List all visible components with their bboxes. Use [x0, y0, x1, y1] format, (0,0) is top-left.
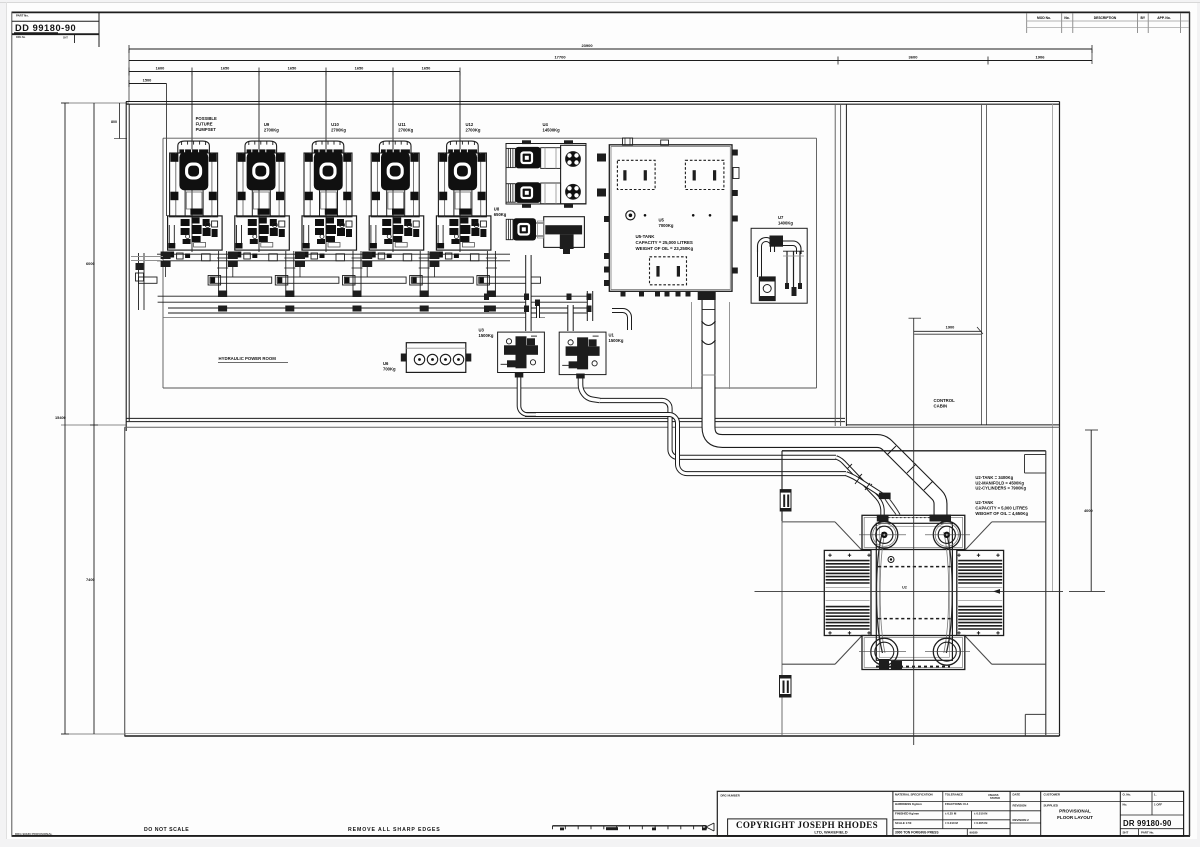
svg-text:LTD, WAKEFIELD: LTD, WAKEFIELD — [814, 830, 847, 835]
svg-text:6000: 6000 — [86, 261, 95, 266]
svg-text:MOD No.: MOD No. — [1037, 16, 1051, 20]
svg-text:U10: U10 — [331, 122, 339, 127]
svg-text:FRACTIONS ±0.4: FRACTIONS ±0.4 — [945, 802, 969, 806]
svg-text:U12: U12 — [466, 122, 474, 127]
svg-text:CUSTOMER: CUSTOMER — [1044, 793, 1061, 797]
svg-text:SUPPLIED: SUPPLIED — [1044, 804, 1058, 808]
svg-text:DD 99180-90: DD 99180-90 — [15, 23, 76, 33]
svg-text:DO NOT SCALE: DO NOT SCALE — [144, 827, 189, 833]
svg-text:O. No.: O. No. — [1123, 793, 1132, 797]
svg-text:650Kg: 650Kg — [494, 212, 507, 217]
svg-text:DATE: DATE — [1013, 793, 1021, 797]
svg-text:± 0.010 IN: ± 0.010 IN — [974, 812, 987, 816]
svg-text:PART No.: PART No. — [16, 14, 29, 18]
svg-text:3600: 3600 — [909, 55, 919, 60]
svg-text:U4: U4 — [543, 122, 549, 127]
svg-text:U11: U11 — [398, 122, 406, 127]
svg-text:± 0.25 M: ± 0.25 M — [945, 812, 957, 816]
svg-text:REMOVE ALL SHARP EDGES: REMOVE ALL SHARP EDGES — [348, 827, 441, 833]
svg-text:SHT: SHT — [63, 37, 68, 40]
svg-text:HARDNESS Kg/mm: HARDNESS Kg/mm — [895, 802, 922, 806]
svg-text:1 OFF: 1 OFF — [1154, 803, 1162, 807]
svg-text:1650: 1650 — [221, 66, 230, 71]
svg-text:14500Kg: 14500Kg — [543, 127, 561, 132]
svg-text:1650: 1650 — [422, 66, 431, 71]
svg-text:3000 TON FORGING PRESS: 3000 TON FORGING PRESS — [895, 831, 939, 835]
svg-text:CAPACITY = 25,000 LITRES: CAPACITY = 25,000 LITRES — [636, 240, 693, 245]
svg-text:± 0.005 IN: ± 0.005 IN — [974, 821, 987, 825]
svg-text:4000: 4000 — [1084, 508, 1093, 513]
svg-text:2700Kg: 2700Kg — [331, 127, 346, 132]
svg-text:PROVISIONAL: PROVISIONAL — [1059, 809, 1091, 814]
svg-text:WEIGHT OF OIL = 23,250Kg: WEIGHT OF OIL = 23,250Kg — [636, 246, 694, 251]
svg-text:1500Kg: 1500Kg — [609, 338, 624, 343]
svg-text:U6: U6 — [383, 361, 389, 366]
svg-text:U2-TANK: U2-TANK — [975, 500, 993, 505]
svg-text:1500: 1500 — [143, 78, 152, 83]
svg-text:7400: 7400 — [86, 577, 95, 582]
svg-text:1500Kg: 1500Kg — [479, 333, 494, 338]
svg-text:700Kg: 700Kg — [383, 366, 396, 371]
svg-text:No.: No. — [1064, 16, 1069, 20]
svg-text:HYDRAULIC POWER ROOM: HYDRAULIC POWER ROOM — [219, 356, 277, 361]
svg-text:1650: 1650 — [355, 66, 364, 71]
svg-text:DRG No: DRG No — [16, 36, 26, 39]
svg-text:± 0.010 M: ± 0.010 M — [945, 821, 958, 825]
svg-text:U7: U7 — [778, 215, 784, 220]
svg-text:U2-TANK = 3400Kg: U2-TANK = 3400Kg — [975, 475, 1013, 480]
svg-text:U5: U5 — [659, 218, 665, 223]
svg-text:2700Kg: 2700Kg — [466, 127, 481, 132]
svg-text:DR 99180-90: DR 99180-90 — [1123, 819, 1172, 828]
svg-text:U5-TANK: U5-TANK — [636, 234, 656, 239]
svg-text:DESCRIPTION: DESCRIPTION — [1094, 16, 1117, 20]
svg-text:99180: 99180 — [970, 831, 978, 835]
svg-text:STATED: STATED — [990, 796, 1000, 800]
svg-text:DRG 99180 PROVISIONAL: DRG 99180 PROVISIONAL — [15, 832, 53, 836]
svg-text:L.: L. — [1154, 793, 1157, 797]
svg-text:REVISION: REVISION — [1013, 804, 1027, 808]
svg-text:DRG NUMBER: DRG NUMBER — [721, 793, 740, 797]
svg-text:1400Kg: 1400Kg — [778, 220, 793, 225]
svg-text:CABIN: CABIN — [934, 404, 948, 409]
svg-text:No.: No. — [1123, 803, 1128, 807]
svg-text:U3: U3 — [479, 328, 485, 333]
svg-text:23900: 23900 — [581, 43, 593, 48]
svg-text:U2-MANIFOLD = 4500Kg: U2-MANIFOLD = 4500Kg — [975, 480, 1024, 485]
svg-text:U9: U9 — [264, 122, 270, 127]
svg-text:2700Kg: 2700Kg — [398, 127, 413, 132]
svg-text:PUMPSET: PUMPSET — [196, 127, 217, 132]
svg-text:FUTURE: FUTURE — [196, 122, 213, 127]
svg-text:CAPACITY = 5,000 LITRES: CAPACITY = 5,000 LITRES — [975, 506, 1028, 511]
svg-text:U8: U8 — [494, 206, 500, 211]
svg-text:15400: 15400 — [55, 415, 66, 420]
svg-text:2700Kg: 2700Kg — [264, 127, 279, 132]
svg-text:WEIGHT OF OIL = 4,650Kg: WEIGHT OF OIL = 4,650Kg — [975, 511, 1028, 516]
svg-text:FLOOR LAYOUT: FLOOR LAYOUT — [1057, 815, 1093, 820]
svg-text:1906: 1906 — [1036, 55, 1046, 60]
svg-text:17700: 17700 — [554, 55, 566, 60]
svg-text:FINISHED Kg/mm: FINISHED Kg/mm — [895, 812, 920, 816]
svg-text:POSSIBLE: POSSIBLE — [196, 116, 217, 121]
svg-text:U1: U1 — [609, 333, 615, 338]
svg-text:1900: 1900 — [946, 324, 955, 329]
svg-text:7000Kg: 7000Kg — [659, 223, 674, 228]
svg-text:U2: U2 — [902, 586, 907, 590]
svg-text:TOLERANCE: TOLERANCE — [945, 793, 963, 797]
svg-text:800: 800 — [111, 120, 117, 124]
svg-text:COPYRIGHT JOSEPH RHODES: COPYRIGHT JOSEPH RHODES — [736, 820, 878, 830]
svg-text:U2-CYLINDERS = 7900Kg: U2-CYLINDERS = 7900Kg — [975, 486, 1026, 491]
svg-text:1650: 1650 — [288, 66, 297, 71]
svg-text:REVISION 2: REVISION 2 — [1013, 818, 1030, 822]
svg-text:SHT: SHT — [1123, 831, 1129, 835]
svg-text:PART No.: PART No. — [1141, 831, 1154, 835]
svg-text:SCALE 1:50: SCALE 1:50 — [895, 821, 912, 825]
svg-text:CONTROL: CONTROL — [934, 398, 956, 403]
svg-text:1600: 1600 — [156, 66, 165, 71]
svg-text:MATERIAL SPECIFICATION: MATERIAL SPECIFICATION — [895, 793, 933, 797]
svg-text:BY: BY — [1141, 16, 1146, 20]
svg-text:APP. No.: APP. No. — [1157, 16, 1171, 20]
